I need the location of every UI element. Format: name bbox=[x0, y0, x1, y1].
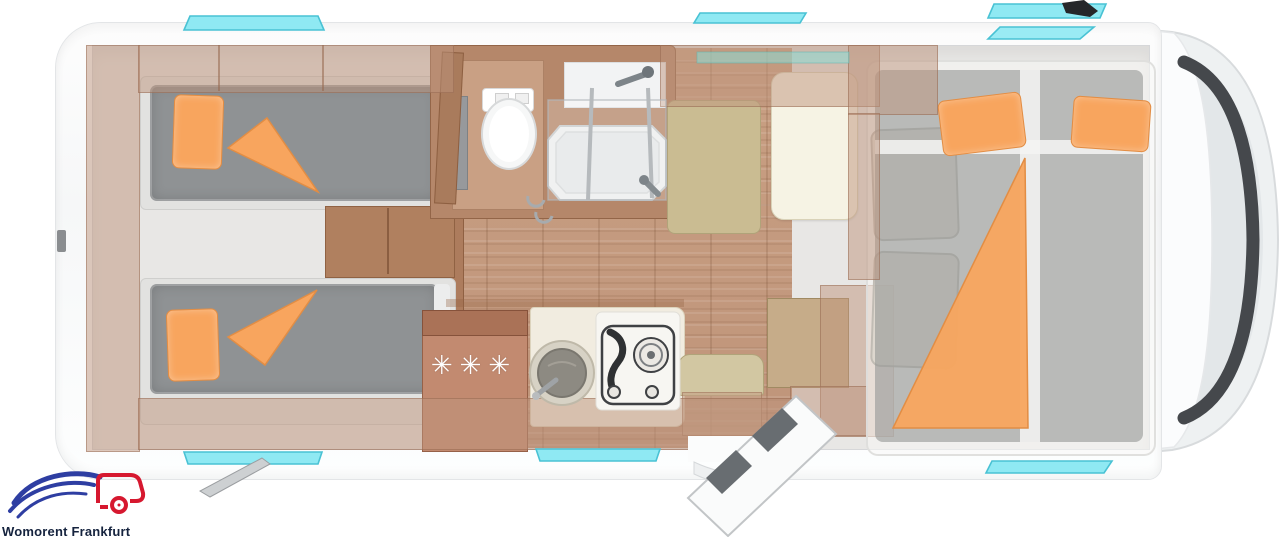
blanket-rear-bottom bbox=[228, 290, 317, 365]
window-roof-mid bbox=[694, 13, 806, 23]
gas-hob bbox=[596, 312, 680, 410]
logo-camper-icon bbox=[98, 475, 143, 512]
logo-text: Womorent Frankfurt bbox=[2, 524, 172, 537]
glass-shelf-strip bbox=[697, 52, 849, 63]
window-bottom-rear bbox=[184, 452, 322, 464]
overlay-svg bbox=[0, 0, 1280, 537]
skylight-front bbox=[988, 27, 1094, 39]
logo: Womorent Frankfurt bbox=[2, 463, 172, 537]
shower-cabin bbox=[548, 66, 666, 200]
floorplan-canvas: ✳✳✳ bbox=[0, 0, 1280, 537]
logo-mark bbox=[2, 463, 172, 519]
logo-swoosh-icon bbox=[10, 474, 100, 517]
entry-door-leaf bbox=[688, 396, 836, 536]
kitchen-sink bbox=[530, 341, 594, 405]
entry-door-open bbox=[688, 396, 836, 536]
window-roof-rear bbox=[184, 16, 324, 30]
window-bottom-front bbox=[986, 461, 1112, 473]
blanket-front bbox=[893, 158, 1028, 428]
window-bottom-mid bbox=[536, 449, 660, 461]
blanket-rear-top bbox=[228, 118, 318, 192]
